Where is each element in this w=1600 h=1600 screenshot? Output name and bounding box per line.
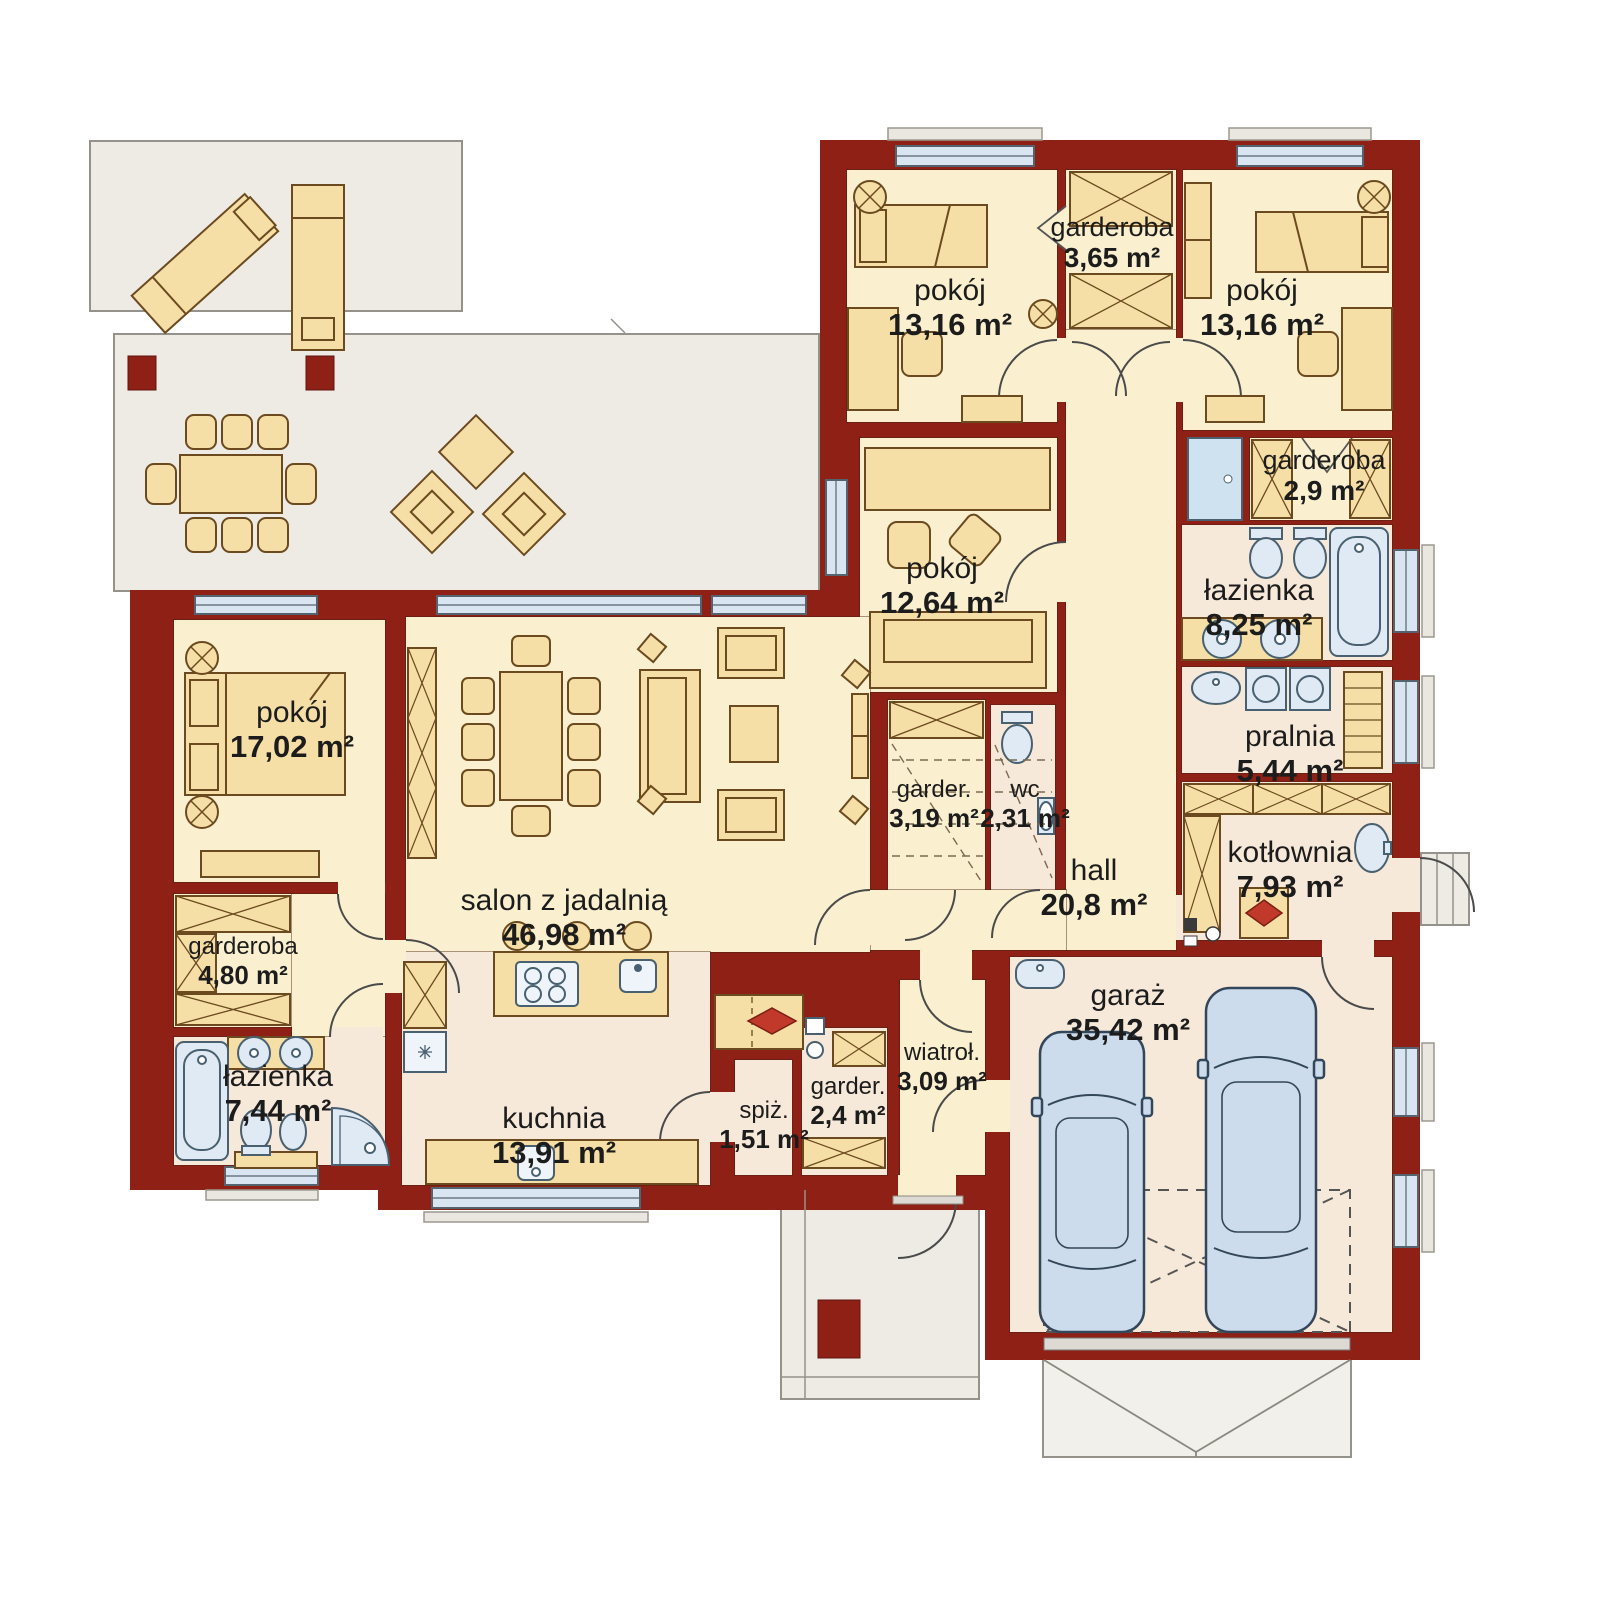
label-kotlownia: kotłownia 7,93 m² (1227, 836, 1352, 904)
label-wiatrolap: wiatroł. 3,09 m² (897, 1040, 987, 1096)
label-salon: salon z jadalnią 46,98 m² (461, 884, 668, 952)
room-left-hallway (292, 894, 385, 1037)
terrace-upper (89, 140, 463, 312)
label-garderoba-29: garderoba 2,9 m² (1262, 445, 1385, 507)
label-lazienka-825: łazienka 8,25 m² (1204, 574, 1314, 642)
label-garderoba-365: garderoba 3,65 m² (1050, 212, 1173, 274)
label-garderoba-480: garderoba 4,80 m² (188, 934, 297, 990)
label-kuchnia: kuchnia 13,91 m² (492, 1102, 616, 1170)
label-spiz: spiż. 1,51 m² (719, 1098, 809, 1154)
label-hall: hall 20,8 m² (1041, 854, 1148, 922)
label-garderoba-319: garder. 3,19 m² (889, 777, 979, 833)
label-pokoj-13a: pokój 13,16 m² (888, 274, 1012, 342)
label-garaz: garaż 35,42 m² (1066, 979, 1190, 1047)
label-pokoj-17: pokój 17,02 m² (230, 696, 354, 764)
room-hall (847, 890, 1066, 950)
label-pokoj-13b: pokój 13,16 m² (1200, 274, 1324, 342)
floor-plan: pokój 13,16 m² garderoba 3,65 m² pokój 1… (0, 0, 1600, 1600)
garage-apron (1042, 1358, 1352, 1458)
side-steps (1420, 852, 1470, 926)
label-lazienka-744: łazienka 7,44 m² (223, 1060, 333, 1128)
label-wc: wc 2,31 m² (980, 777, 1070, 833)
label-pralnia: pralnia 5,44 m² (1237, 720, 1344, 788)
entry-porch (780, 1190, 980, 1400)
terrace-lower (113, 333, 820, 592)
label-garderoba-24: garder. 2,4 m² (810, 1074, 885, 1130)
label-pokoj-1264: pokój 12,64 m² (880, 552, 1004, 620)
